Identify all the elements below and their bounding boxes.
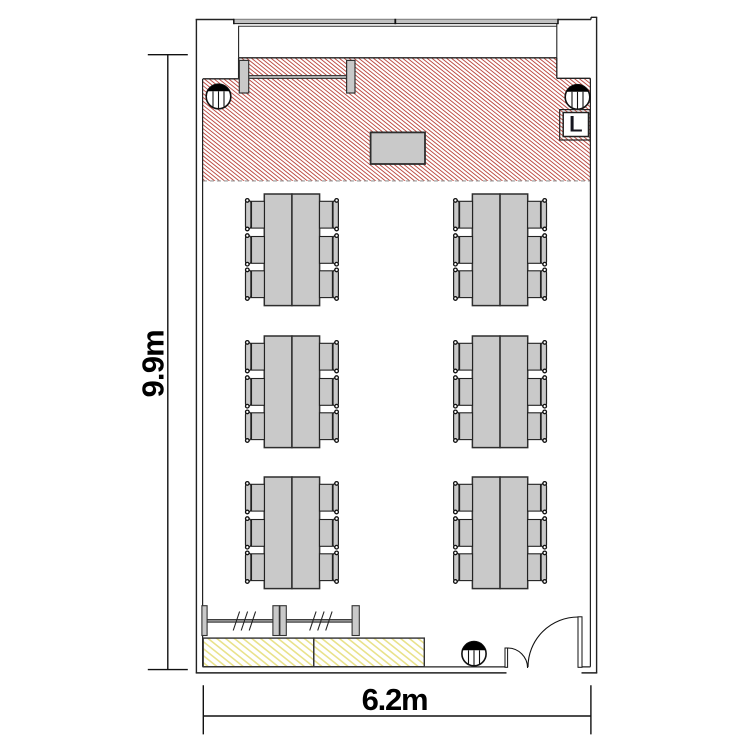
svg-text:9.9m: 9.9m bbox=[135, 330, 170, 397]
svg-text:6.2m: 6.2m bbox=[362, 682, 428, 717]
